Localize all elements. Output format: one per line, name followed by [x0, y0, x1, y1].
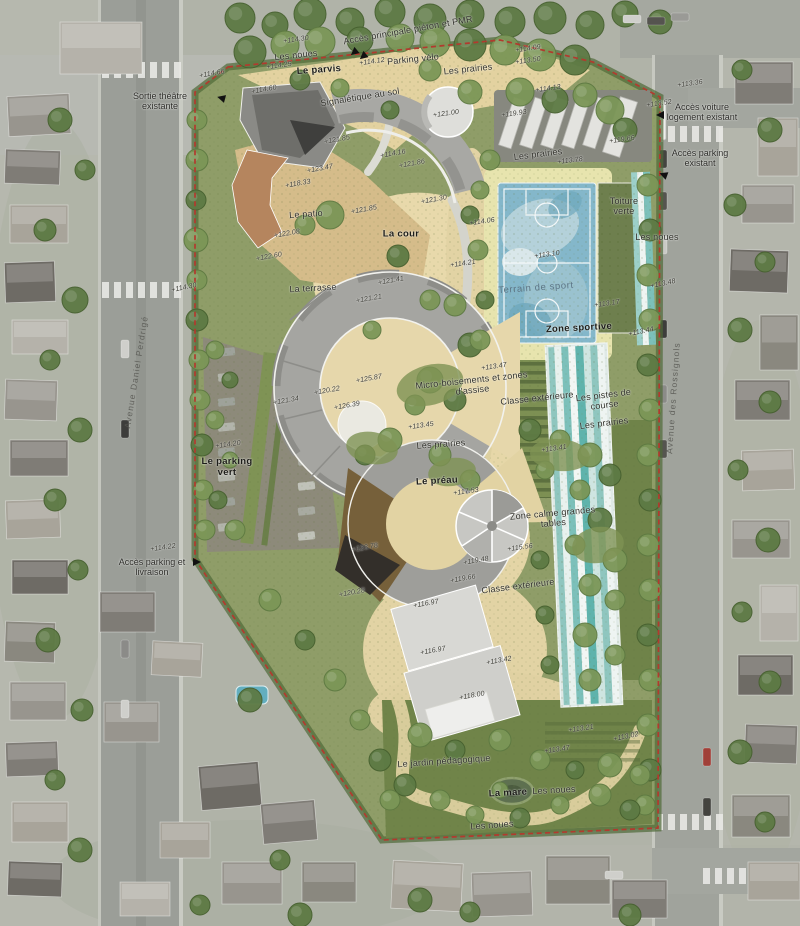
left-street: [98, 0, 183, 926]
site-plan-stage: Accès principale piéton et PMR+114.30Les…: [0, 0, 800, 926]
aerial-plan-canvas: [0, 0, 800, 926]
preau-rotunda: [456, 490, 528, 562]
